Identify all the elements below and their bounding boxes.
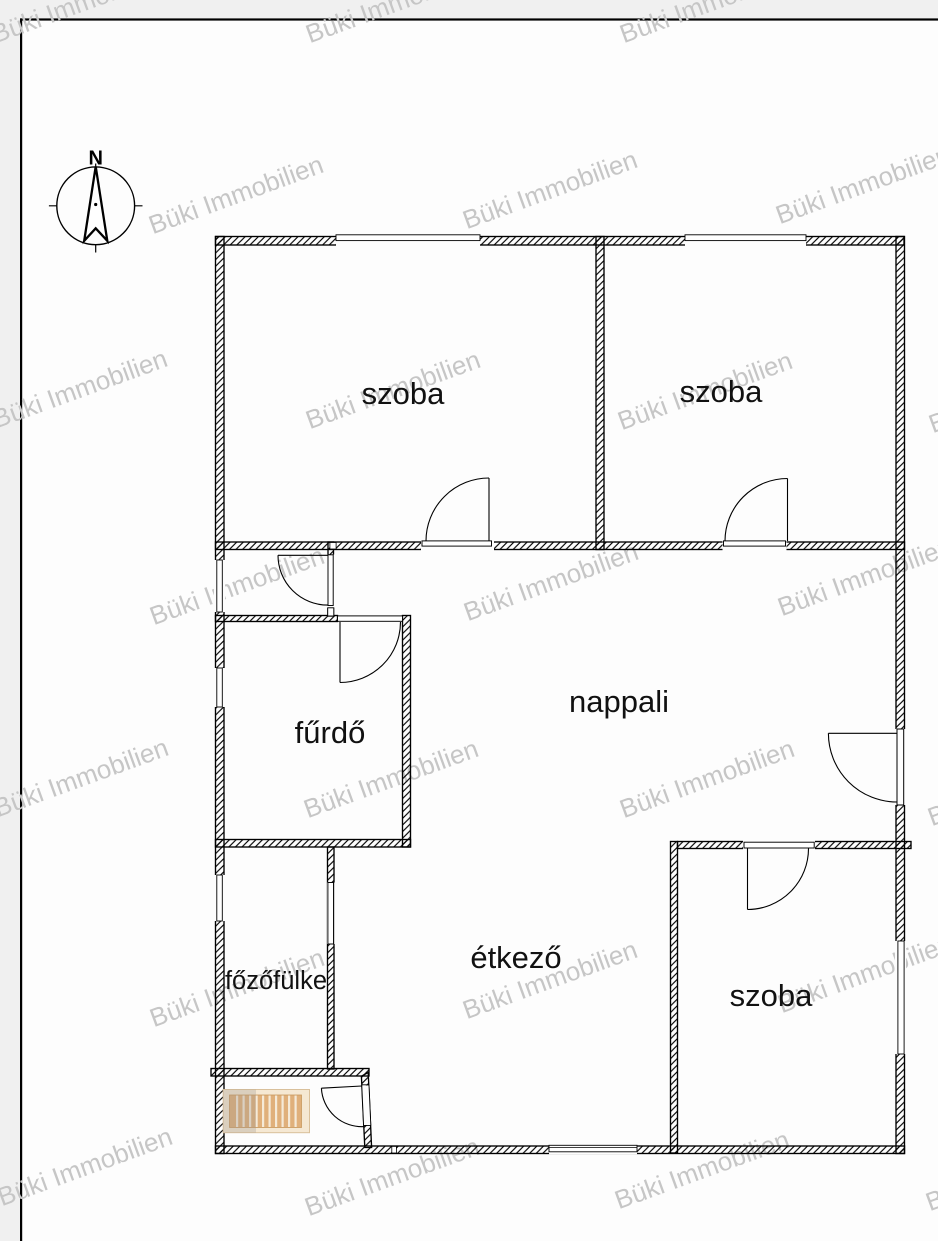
svg-text:szoba: szoba (362, 376, 445, 411)
svg-text:szoba: szoba (680, 374, 763, 409)
svg-text:nappali: nappali (569, 684, 669, 719)
svg-text:főzőfülke: főzőfülke (225, 967, 327, 995)
svg-text:szoba: szoba (730, 978, 813, 1013)
svg-text:fűrdő: fűrdő (295, 715, 366, 750)
svg-text:étkező: étkező (470, 940, 561, 975)
svg-text:N: N (88, 148, 102, 170)
